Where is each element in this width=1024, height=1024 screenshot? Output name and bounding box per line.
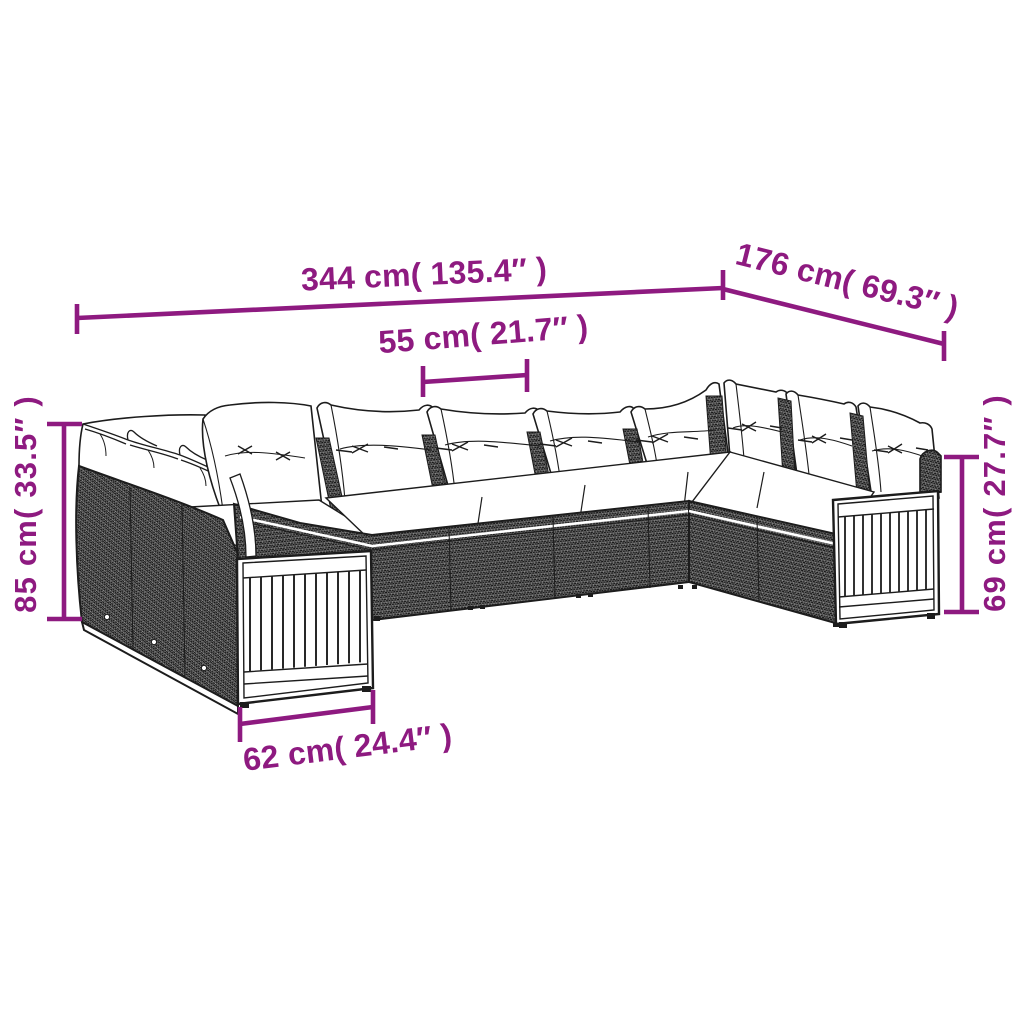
svg-text:85 cm( 33.5″ ): 85 cm( 33.5″ ) [8, 395, 43, 613]
svg-text:69 cm( 27.7″ ): 69 cm( 27.7″ ) [977, 394, 1012, 612]
